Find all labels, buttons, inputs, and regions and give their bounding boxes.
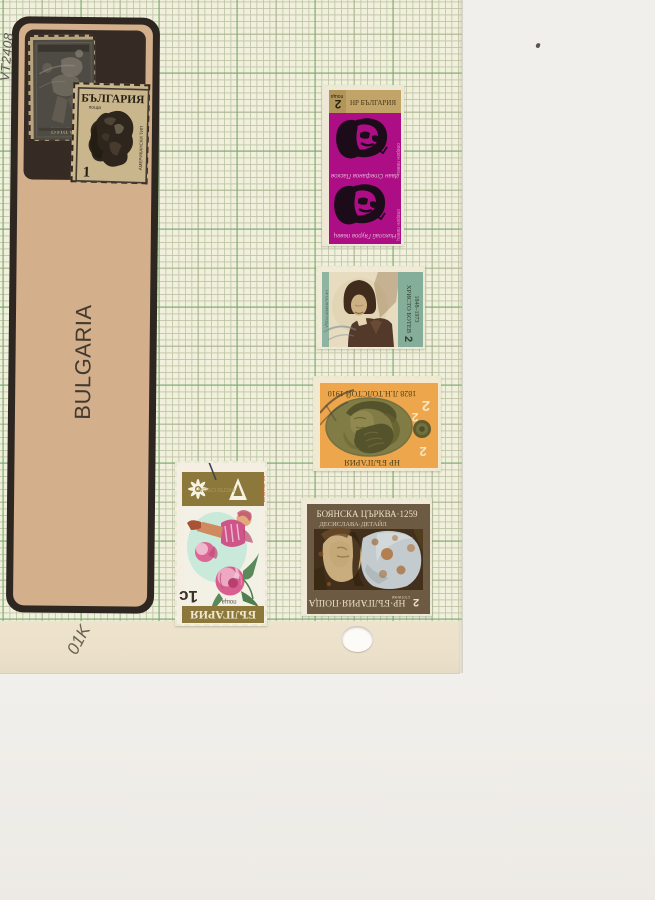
svg-text:ХРИСТО БОТЕВ: ХРИСТО БОТЕВ — [405, 285, 412, 334]
svg-text:оперен певец: оперен певец — [395, 209, 401, 241]
svg-text:НР БЪЛГАРИЯ: НР БЪЛГАРИЯ — [344, 458, 400, 468]
svg-text:1848–1973: 1848–1973 — [413, 296, 419, 323]
svg-text:1: 1 — [83, 165, 91, 181]
svg-text:2: 2 — [413, 596, 419, 608]
svg-text:НР·БЪЛГАРИЯ·ПОЩА: НР·БЪЛГАРИЯ·ПОЩА — [309, 597, 406, 607]
svg-text:БОЯНСКА ЦЪРКВА·1259: БОЯНСКА ЦЪРКВА·1259 — [316, 509, 418, 519]
svg-text:поща: поща — [89, 105, 102, 111]
svg-text:оперен певец: оперен певец — [395, 143, 401, 175]
svg-text:стотинки: стотинки — [391, 595, 410, 600]
svg-text:1828 Л.Н.ТОЛСТОЙ 1910: 1828 Л.Н.ТОЛСТОЙ 1910 — [328, 389, 416, 398]
svg-text:АМЕРИКАНСКИ ТИП: АМЕРИКАНСКИ ТИП — [138, 126, 144, 171]
svg-text:2: 2 — [419, 444, 426, 459]
svg-text:БЪЛГАРИЯ: БЪЛГАРИЯ — [190, 608, 256, 622]
svg-text:2: 2 — [334, 97, 341, 111]
svg-text:БЪЛГАРИЯ: БЪЛГАРИЯ — [259, 476, 265, 503]
svg-text:Николай Гяуров певец: Николай Гяуров певец — [333, 232, 396, 239]
svg-text:Иван Стефанов Пасков: Иван Стефанов Пасков — [331, 172, 399, 178]
svg-text:НР БЪЛГАРИЯ ПОЩА: НР БЪЛГАРИЯ ПОЩА — [325, 290, 329, 328]
svg-text:ЕКСПО СЛИВЕН: ЕКСПО СЛИВЕН — [195, 486, 235, 492]
svg-text:1с: 1с — [179, 587, 198, 606]
svg-text:ДЕСИСЛАВА·ДЕТАЙЛ: ДЕСИСЛАВА·ДЕТАЙЛ — [319, 520, 387, 528]
svg-text:НР БЪЛГАРИЯ: НР БЪЛГАРИЯ — [350, 99, 396, 107]
svg-text:2: 2 — [402, 336, 414, 342]
svg-text:2: 2 — [422, 397, 430, 414]
svg-text:поща: поща — [221, 598, 237, 604]
